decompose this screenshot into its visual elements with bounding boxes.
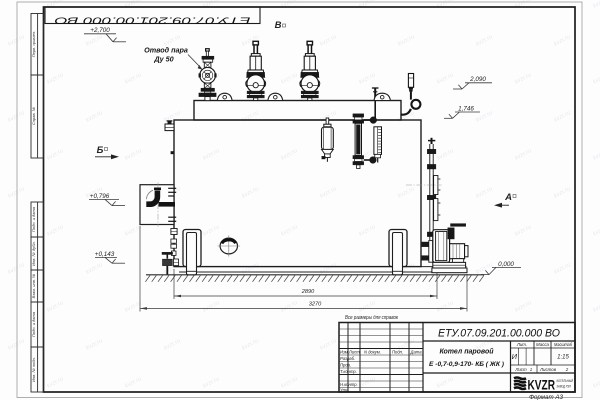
svg-text:Е -0,7-0,9-170- КБ ( ЖК ): Е -0,7-0,9-170- КБ ( ЖК ) — [429, 361, 504, 368]
svg-text:2890: 2890 — [301, 289, 315, 295]
svg-text:КОТЕЛЬНЫЙ: КОТЕЛЬНЫЙ — [557, 379, 574, 383]
svg-text:И: И — [512, 352, 518, 361]
svg-text:Подп.: Подп. — [392, 349, 403, 354]
svg-text:Подп. и дата: Подп. и дата — [31, 206, 36, 232]
svg-text:+0,796: +0,796 — [90, 193, 110, 200]
svg-text:ЕТУ.07.09.201.00.000 ВО: ЕТУ.07.09.201.00.000 ВО — [438, 328, 560, 340]
svg-text:Т.контр.: Т.контр. — [340, 369, 357, 374]
svg-text:Перв. примен.: Перв. примен. — [31, 31, 36, 58]
svg-text:3270: 3270 — [309, 301, 322, 307]
svg-text:Листов: Листов — [539, 367, 557, 372]
svg-text:Подп. и дата: Подп. и дата — [31, 311, 36, 337]
svg-text:Лит.: Лит. — [516, 342, 527, 347]
svg-text:2: 2 — [565, 367, 569, 372]
svg-text:Н.контр.: Н.контр. — [340, 382, 358, 387]
svg-text:Все размеры для справок: Все размеры для справок — [345, 315, 398, 321]
svg-text:ЕТУ.07.09.201.00.000 ВО: ЕТУ.07.09.201.00.000 ВО — [55, 15, 251, 25]
svg-text:Утв.: Утв. — [340, 387, 350, 392]
svg-text:А: А — [504, 192, 512, 203]
svg-text:N докум.: N докум. — [364, 349, 381, 354]
svg-text:ЗАВОД РЭП: ЗАВОД РЭП — [557, 385, 572, 389]
svg-text:KVZR: KVZR — [528, 377, 556, 393]
svg-text:Разраб.: Разраб. — [340, 356, 355, 361]
svg-text:В: В — [275, 20, 282, 31]
svg-text:+0,143: +0,143 — [95, 251, 115, 258]
svg-text:Пров.: Пров. — [340, 363, 351, 368]
svg-text:Инв. № дубл.: Инв. № дубл. — [31, 241, 36, 266]
svg-text:Масштаб: Масштаб — [554, 342, 572, 347]
svg-text:Формат А3: Формат А3 — [529, 394, 563, 400]
svg-text:Дата: Дата — [410, 349, 423, 354]
svg-text:Справ. №: Справ. № — [31, 106, 36, 125]
svg-text:Лист: Лист — [514, 367, 527, 372]
svg-text:Изм Лист: Изм Лист — [340, 349, 360, 354]
svg-text:0,000: 0,000 — [498, 261, 514, 268]
svg-text:1:15: 1:15 — [557, 355, 569, 361]
svg-text:Взам. инв. №: Взам. инв. № — [31, 273, 36, 298]
svg-text:Котел паровой: Котел паровой — [439, 348, 494, 356]
svg-text:+2,700: +2,700 — [90, 27, 110, 34]
svg-text:2,090: 2,090 — [469, 76, 486, 83]
svg-text:Масса: Масса — [536, 342, 550, 347]
svg-text:Ду 50: Ду 50 — [153, 55, 173, 64]
svg-text:Инв. № подл.: Инв. № подл. — [31, 357, 36, 382]
svg-text:1,746: 1,746 — [458, 106, 474, 113]
svg-text:Б: Б — [97, 145, 104, 156]
svg-text:Отвод пара: Отвод пара — [144, 46, 188, 55]
